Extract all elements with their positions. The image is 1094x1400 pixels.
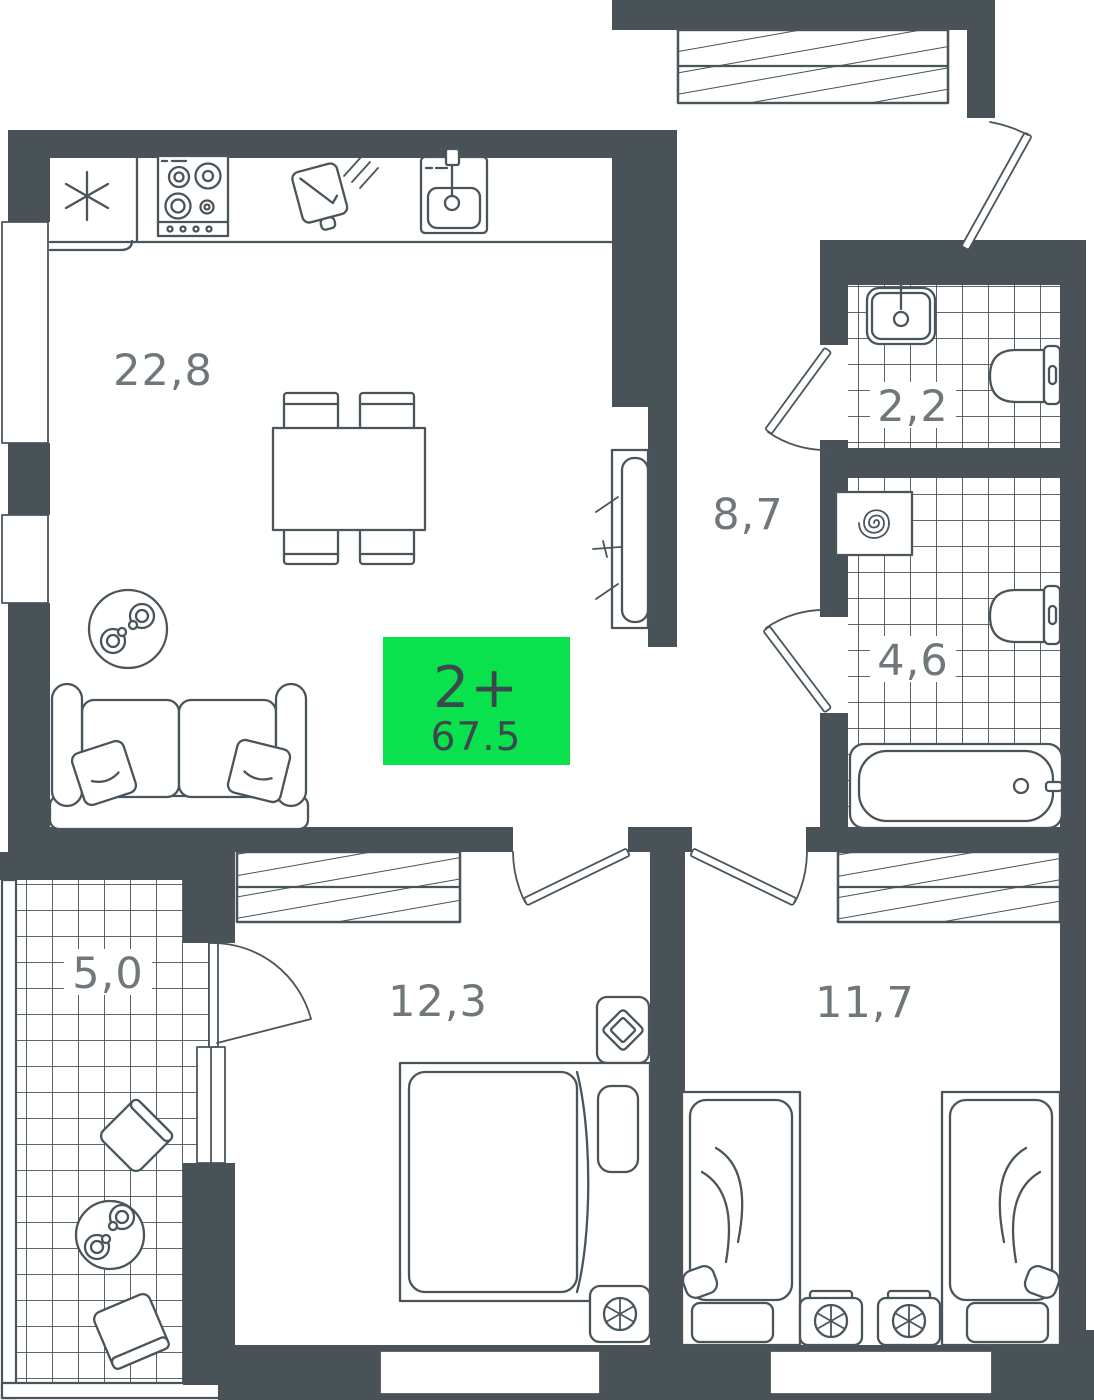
label-bathroom: 4,6 bbox=[877, 636, 948, 686]
label-kitchen-living: 22,8 bbox=[113, 346, 213, 396]
door-balcony bbox=[209, 943, 311, 1047]
fridge-icon bbox=[66, 172, 108, 220]
kitchen-sink-icon bbox=[421, 149, 487, 233]
window-bedroom-2 bbox=[770, 1351, 992, 1394]
door-entrance bbox=[962, 122, 1032, 250]
label-wc: 2,2 bbox=[877, 382, 948, 432]
window-balcony-partition bbox=[197, 1047, 225, 1163]
label-balcony: 5,0 bbox=[72, 949, 143, 999]
tv-unit bbox=[593, 450, 648, 628]
nightstand-b bbox=[878, 1291, 940, 1345]
dining-table-set bbox=[273, 393, 425, 564]
label-bedroom-2: 11,7 bbox=[815, 978, 915, 1028]
sofa bbox=[50, 684, 308, 829]
unit-badge-area: 67.5 bbox=[431, 715, 522, 760]
window-living-2 bbox=[2, 515, 48, 603]
floor-plan: 22,8 8,7 2,2 4,6 5,0 12,3 11,7 2+ 67.5 bbox=[0, 0, 1094, 1400]
stove-icon bbox=[158, 156, 228, 236]
balcony-table bbox=[76, 1201, 144, 1269]
nightstand-a bbox=[800, 1291, 862, 1345]
toilet-bathroom bbox=[990, 586, 1060, 644]
wardrobe-bedroom-1 bbox=[237, 852, 460, 922]
single-bed-right bbox=[942, 1092, 1062, 1345]
door-bathroom bbox=[763, 610, 831, 712]
window-bedroom-1 bbox=[380, 1351, 600, 1394]
label-hallway: 8,7 bbox=[712, 490, 783, 540]
window-living-1 bbox=[2, 222, 48, 443]
double-bed bbox=[400, 1063, 650, 1301]
pouf-plant bbox=[590, 1286, 650, 1342]
single-bed-left bbox=[680, 1092, 800, 1345]
door-bedroom-1 bbox=[513, 848, 630, 905]
bathtub bbox=[850, 744, 1062, 828]
unit-badge[interactable]: 2+ 67.5 bbox=[383, 637, 570, 765]
label-bedroom-1: 12,3 bbox=[388, 977, 488, 1027]
nightstand-bedroom-1 bbox=[597, 997, 649, 1063]
toilet-wc bbox=[990, 346, 1060, 404]
wash-basin bbox=[867, 281, 935, 344]
cutting-board-icon bbox=[291, 156, 378, 235]
sofa-pillow bbox=[226, 738, 291, 803]
washing-machine bbox=[836, 492, 912, 555]
floor-plan-svg: 22,8 8,7 2,2 4,6 5,0 12,3 11,7 2+ 67.5 bbox=[0, 0, 1094, 1400]
unit-badge-rooms: 2+ bbox=[433, 655, 519, 721]
door-bedroom-2 bbox=[690, 848, 807, 905]
door-wc bbox=[765, 348, 831, 450]
wardrobe-bedroom-2 bbox=[838, 852, 1060, 922]
wardrobe-hall bbox=[678, 30, 948, 103]
coffee-table bbox=[89, 590, 167, 668]
